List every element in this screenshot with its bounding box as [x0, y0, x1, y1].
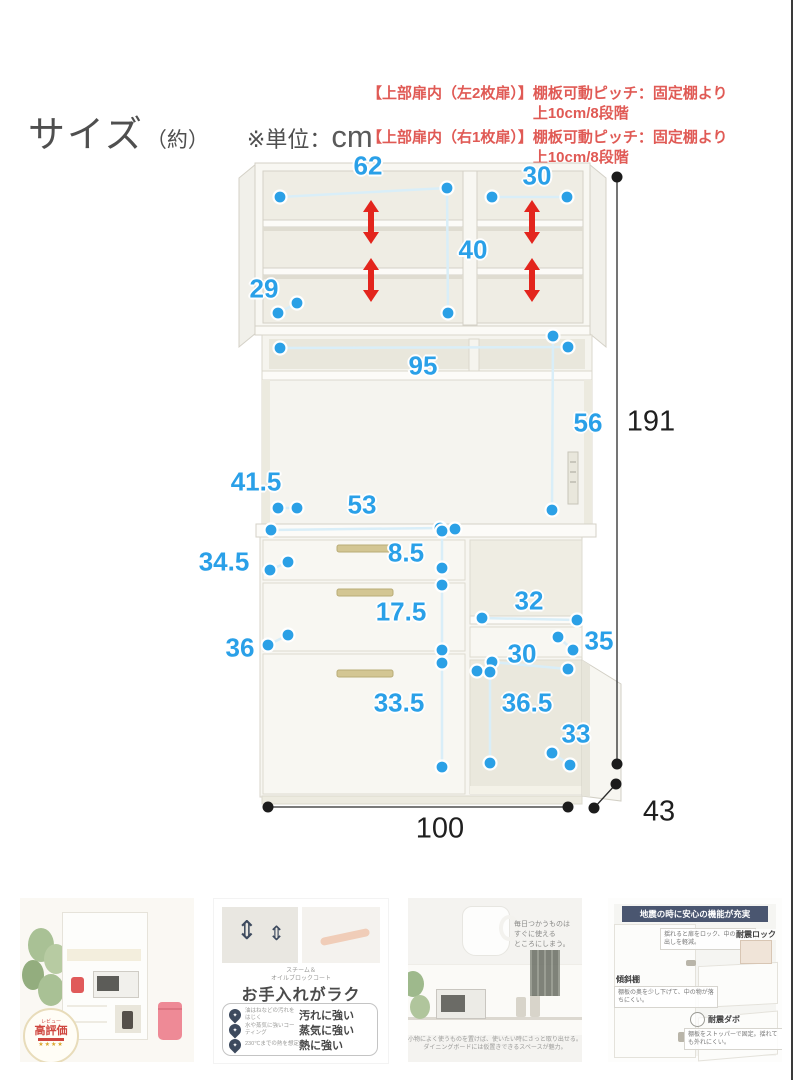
vertical-text-stamp [530, 950, 560, 996]
thumbnail-easy-care[interactable]: ⇕ ⇕ スチーム＆ オイルブロックコート お手入れがラク ✦ 油はねなどの汚れを… [213, 898, 389, 1064]
item-label: 熱に強い [299, 1037, 343, 1053]
up-down-arrow-icon: ⇕ [236, 915, 258, 946]
dim-right-drawer-height: 35 [585, 626, 614, 657]
coat-name-line1: スチーム＆ [214, 967, 388, 975]
easy-care-heading: お手入れがラク [214, 981, 388, 1005]
thumbnail-earthquake-features[interactable]: 地震の時に安心の機能が充実 揺れると扉をロック、中の飛び出しを軽減。 耐震ロック… [608, 898, 782, 1062]
lock-closeup [740, 940, 772, 964]
upper-right-door [589, 164, 606, 347]
dim-niche-height: 56 [574, 408, 603, 439]
item-note: 油はねなどの汚れをはじく [245, 1008, 299, 1022]
heat-resistant-icon: ✦ [227, 1036, 244, 1053]
jar [530, 995, 540, 1017]
trash-can [158, 1002, 182, 1040]
dim-total-depth: 43 [643, 796, 675, 829]
list-item: ✦ 油はねなどの汚れをはじく 汚れに強い [229, 1007, 371, 1022]
dim-drawer2-depth: 36 [226, 633, 255, 664]
list-item: ✦ 230℃までの熱を想定 熱に強い [229, 1037, 371, 1052]
badge-main-text: 高評価 [25, 1025, 77, 1037]
dim-drawer1-depth: 34.5 [199, 547, 250, 578]
kettle [71, 977, 84, 993]
dim-counter-depth: 41.5 [231, 467, 282, 498]
steam-resistant-icon: ✦ [227, 1021, 244, 1038]
dim-counter-left-width: 53 [348, 490, 377, 521]
shelf [263, 220, 463, 227]
stain-resistant-icon: ✦ [227, 1006, 244, 1023]
list-item: ✦ 水や蒸気に強いコーティング 蒸気に強い [229, 1022, 371, 1037]
dim-drawer2-height: 17.5 [376, 597, 427, 628]
dim-top-inner-height: 40 [459, 235, 488, 266]
dim-niche-width: 95 [409, 351, 438, 382]
item-label: 蒸気に強い [299, 1022, 354, 1038]
wipe-photo-right [302, 907, 380, 963]
thumbnail-product-photo[interactable]: レビュー 高評価 ★★★★ [20, 898, 194, 1062]
dim-total-height: 191 [627, 406, 675, 439]
note-line: すぐに使える [514, 930, 570, 940]
dim-top-depth: 29 [250, 274, 279, 305]
outlet [568, 452, 578, 504]
badge-stars: ★★★★ [25, 1041, 77, 1048]
lock-hardware [686, 960, 696, 966]
note-line: 毎日つかうものは [514, 920, 570, 930]
item-note: 230℃までの熱を想定 [245, 1041, 299, 1048]
counter-niche [256, 380, 596, 537]
cabinet-dimension-diagram [0, 0, 796, 880]
dim-top-left-width: 62 [354, 151, 383, 182]
dim-right-inner-width: 32 [515, 586, 544, 617]
dim-drawer1-height: 8.5 [388, 538, 424, 569]
dim-door-width: 33 [562, 719, 591, 750]
earthquake-header: 地震の時に安心の機能が充実 [622, 906, 768, 922]
up-down-arrow-icon: ⇕ [268, 921, 285, 946]
microwave [93, 971, 139, 998]
coating-photo-left: ⇕ ⇕ [222, 907, 298, 963]
jar [516, 997, 526, 1017]
caption-line: 小物によく使うものを置けば、使いたい時にさっと取り出せる。 [408, 1036, 582, 1044]
note-line: ところにしまう。 [514, 940, 570, 950]
drawer-handle [337, 589, 393, 596]
microwave [436, 989, 486, 1019]
base-board [262, 796, 582, 804]
shelf [263, 268, 463, 275]
thumbnail-usage-scene[interactable]: 毎日つかうものは すぐに使える ところにしまう。 小物によく使うものを置けば、使… [408, 898, 582, 1062]
screen-edge-line [791, 0, 793, 1080]
shelf-tooltip: 棚板の奥を少し下げて、中の物が落ちにくい。 [614, 986, 718, 1008]
drawer-handle [337, 545, 393, 552]
upper-left-door [239, 164, 256, 347]
badge-review-text: レビュー [25, 1018, 77, 1025]
dim-top-right-width: 30 [523, 161, 552, 192]
lock-label: 耐震ロック [736, 929, 776, 940]
dabo-tooltip: 棚板をストッパーで固定。揺れても外れにくい。 [684, 1028, 782, 1050]
dim-right-lower-height: 36.5 [502, 688, 553, 719]
dim-right-lower-width: 30 [508, 639, 537, 670]
dabo-circle-icon [690, 1012, 705, 1027]
dabo-label: 耐震ダボ [708, 1014, 740, 1025]
item-note: 水や蒸気に強いコーティング [245, 1023, 299, 1037]
open-cubby [115, 1005, 141, 1033]
item-label: 汚れに強い [299, 1007, 354, 1023]
drawer-handle [337, 670, 393, 677]
durability-list: ✦ 油はねなどの汚れをはじく 汚れに強い ✦ 水や蒸気に強いコーティング 蒸気に… [222, 1003, 378, 1056]
dim-total-width: 100 [416, 813, 464, 846]
dim-drawer3-height: 33.5 [374, 688, 425, 719]
review-badge: レビュー 高評価 ★★★★ [23, 1008, 79, 1062]
mug-photo [462, 906, 510, 956]
caption-line: ダイニングボードには仮置きできるスペースが魅力。 [408, 1044, 582, 1052]
shelf-label: 傾斜棚 [616, 974, 640, 985]
